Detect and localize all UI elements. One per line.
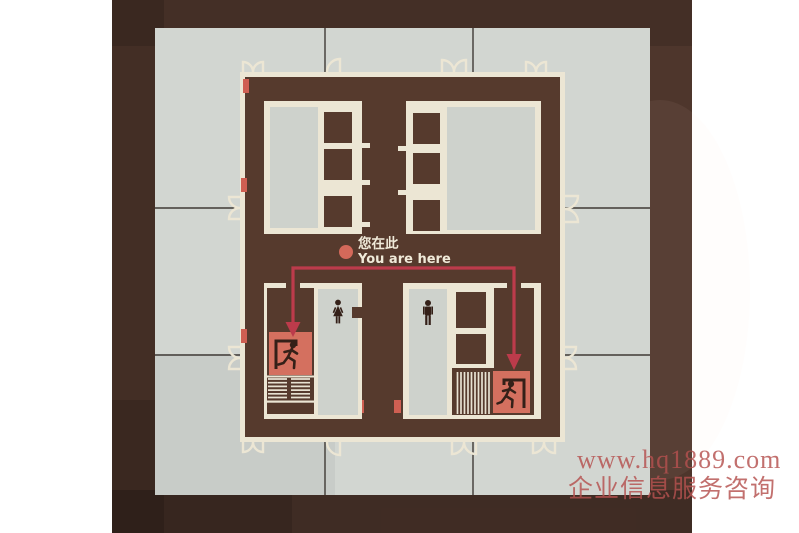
- wall-tab: [398, 190, 406, 195]
- door-mark: [243, 79, 249, 93]
- unit-bottom-right: [403, 282, 541, 419]
- shaft-cell: [324, 149, 352, 180]
- watermark-url: www.hq1889.com: [577, 445, 781, 474]
- unit-top-left: [264, 101, 370, 234]
- shaft-cell: [456, 292, 486, 328]
- door-mark: [241, 178, 247, 192]
- you-are-here-text-en: You are here: [357, 252, 451, 267]
- shaft-cell: [413, 200, 440, 231]
- wall-tab: [398, 146, 406, 151]
- shaft-cell: [456, 334, 486, 364]
- room-large: [270, 107, 318, 228]
- you-are-here-text-zh: 您在此: [358, 235, 399, 252]
- wall-tab: [362, 180, 370, 185]
- evacuation-sign-photo: 您在此 You are here www.hq1889.com 企业信息服务咨询: [0, 0, 799, 533]
- door-gap: [352, 307, 362, 318]
- door-mark: [241, 329, 247, 343]
- stair-landing-line: [266, 401, 314, 403]
- door-mark: [394, 400, 401, 413]
- watermark-caption: 企业信息服务咨询: [568, 475, 776, 503]
- exit-sign-right: [493, 371, 530, 413]
- stair-landing-line: [266, 376, 314, 378]
- unit-bottom-left: [264, 282, 362, 419]
- wall-tab: [362, 143, 370, 148]
- shaft-cell: [413, 153, 440, 184]
- you-are-here-dot-icon: [339, 245, 353, 259]
- shaft-cell: [413, 113, 440, 144]
- room-large: [447, 107, 535, 230]
- shaft-cell: [324, 196, 352, 227]
- exit-sign-left: [269, 332, 312, 375]
- unit-top-right: [398, 101, 541, 234]
- wall-tab: [362, 222, 370, 227]
- floor-plan: 您在此 You are here: [229, 59, 578, 455]
- shaft-cell: [324, 112, 352, 143]
